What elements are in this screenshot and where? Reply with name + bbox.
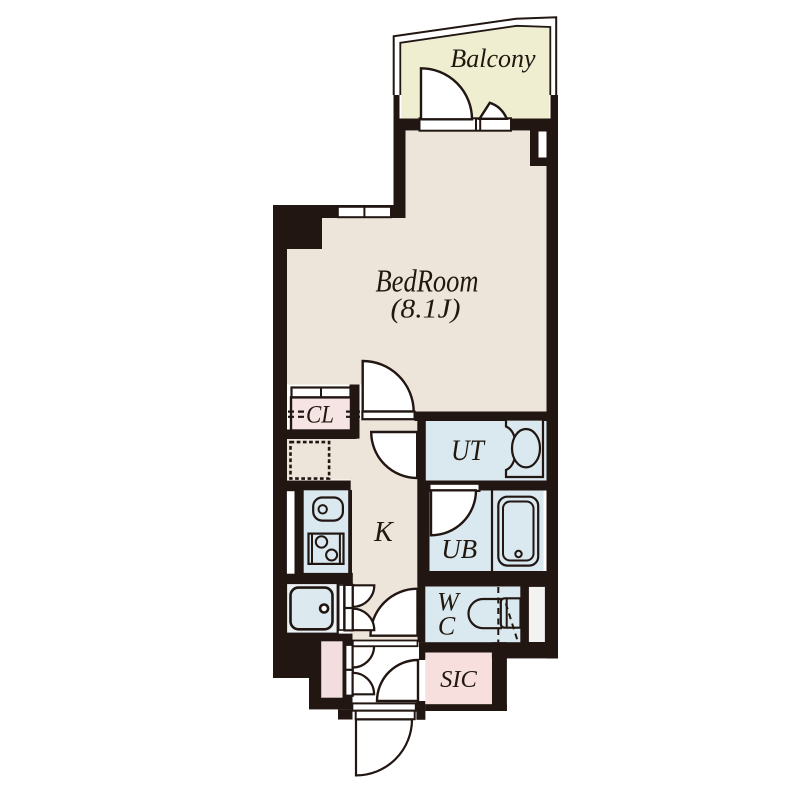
svg-text:SIC: SIC — [440, 666, 477, 693]
svg-text:UB: UB — [441, 534, 477, 564]
svg-text:UT: UT — [451, 434, 486, 467]
svg-text:Balcony: Balcony — [450, 44, 536, 73]
svg-text:(8.1J): (8.1J) — [391, 294, 461, 324]
svg-text:K: K — [373, 517, 394, 548]
svg-text:C: C — [438, 612, 456, 641]
svg-text:CL: CL — [306, 402, 334, 429]
